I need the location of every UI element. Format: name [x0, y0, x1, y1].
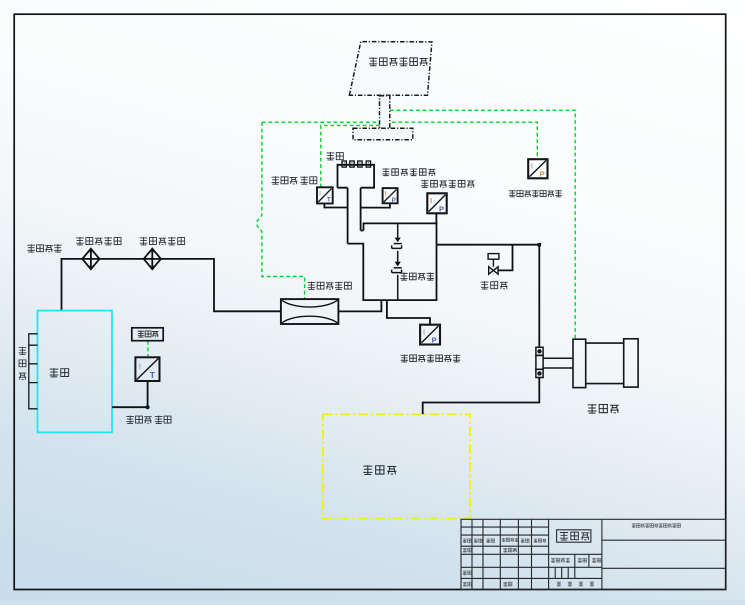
svg-text:I: I: [139, 362, 141, 372]
svg-text:P: P: [392, 198, 396, 204]
svg-text:P: P: [439, 205, 444, 214]
svg-text:P: P: [432, 336, 437, 345]
svg-text:T: T: [327, 198, 331, 204]
svg-text:T: T: [150, 370, 156, 380]
svg-text:I: I: [531, 162, 533, 171]
svg-text:I: I: [423, 327, 425, 336]
svg-text:P: P: [540, 170, 545, 179]
svg-text:I: I: [430, 196, 432, 205]
